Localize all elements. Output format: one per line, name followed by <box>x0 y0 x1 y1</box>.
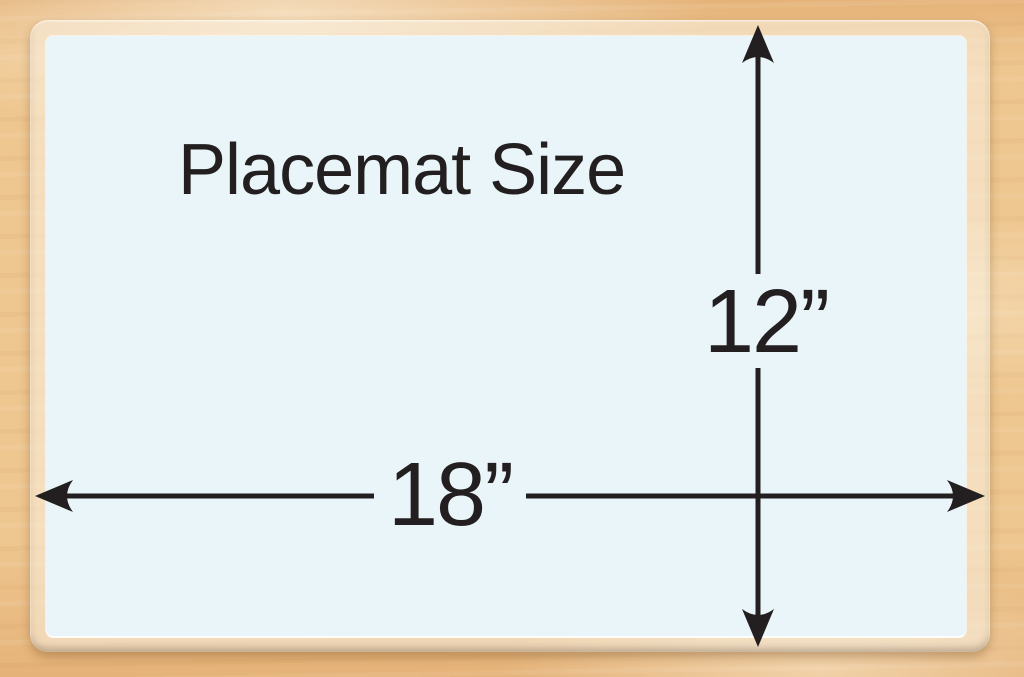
width-dimension-label: 18” <box>388 450 512 540</box>
height-dimension-label: 12” <box>704 277 828 367</box>
dimension-lines <box>0 0 1024 677</box>
wood-table-background: Placemat Size 12” 18” <box>0 0 1024 677</box>
